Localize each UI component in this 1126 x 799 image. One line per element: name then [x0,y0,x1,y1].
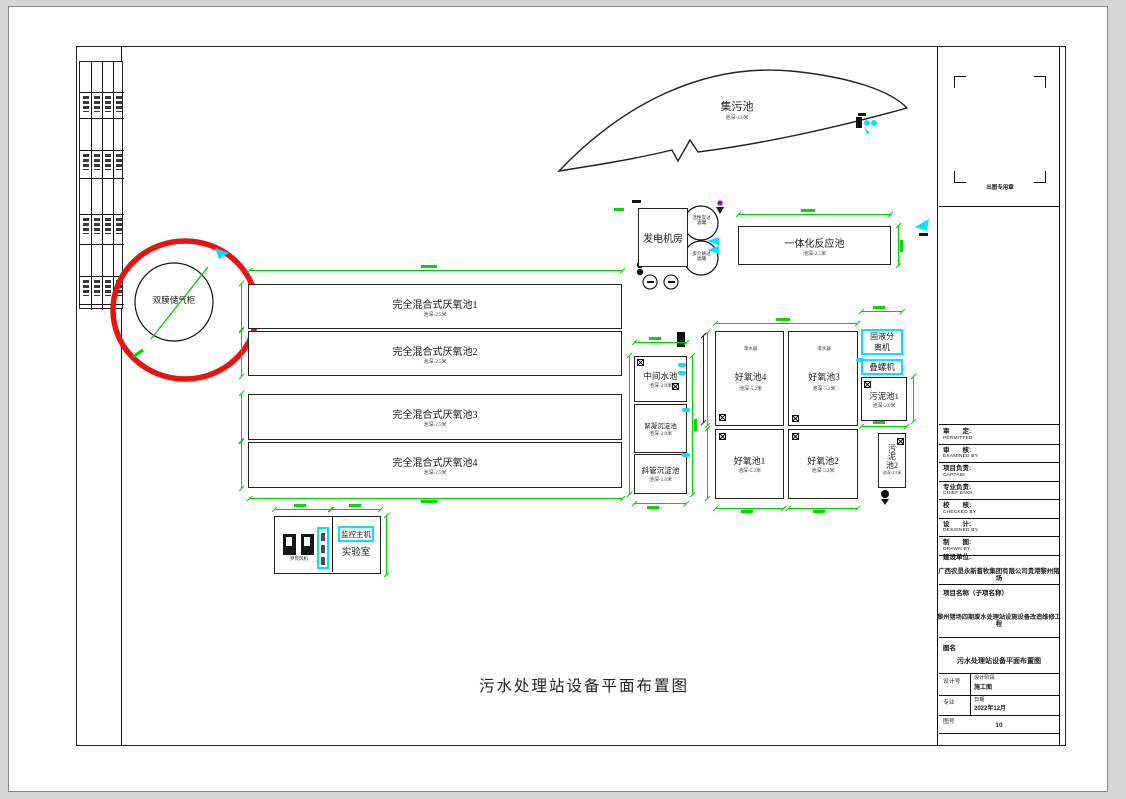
anaerobic-tank-3: 完全混合式厌氧池3 池深-2.5米 [248,394,622,440]
legend-text-mark [94,154,100,170]
dimension-text [900,240,903,252]
roots-blower-label: 罗茨风机 [279,556,319,561]
tiny-annotation [919,233,928,236]
aerobic-tank-3: 滗水器 好氧池3 池深-5.2米 [788,331,858,426]
cabinet-text-mark [321,533,325,541]
aerobic-tank-4-label: 好氧池4 [716,372,785,382]
dimension-text [873,421,885,424]
anaerobic-tank-2-depth: 池深-2.5米 [424,358,447,365]
tiny-annotation [632,200,641,203]
dimension-text [294,504,306,507]
dimension-text [647,506,659,509]
dimension-line [707,333,708,425]
anaerobic-tank-2-label: 完全混合式厌氧池2 [393,343,478,358]
dimension-text [649,337,661,340]
solid-liquid-separator: 固液分 离机 [861,329,903,355]
dimension-text [614,208,624,211]
flocculation-tank-label: 絮凝沉淀池 [644,420,677,430]
aerobic-tank-4-depth: 池深-5.2米 [716,387,785,393]
valve-symbol [672,383,679,390]
dimension-text [421,500,437,503]
aerobic-tank-1-label: 好氧池1 [734,454,766,467]
media-filter-label: 多介质过 滤罐 [688,251,715,262]
screenshot-canvas: 集污池 池深-4.0米 双膜储气柜 活性炭过 滤罐 多介质过 滤罐 发电机房 一… [0,0,1126,799]
legend-text-mark [83,96,89,112]
integrated-reactor: 一体化反应池 池深-2.5米 [738,226,891,265]
solid-liquid-separator-label: 固液分 离机 [870,331,894,353]
dimension-line [386,516,387,574]
anaerobic-tank-4-label: 完全混合式厌氧池4 [393,454,478,469]
inclined-tube-tank-label: 斜管沉淀池 [642,465,680,476]
laboratory-label: 实验室 [338,548,374,559]
dimension-line [241,331,242,376]
dimension-line [634,342,687,343]
signature-row-en: CHECKED BY [943,510,1013,516]
titleblock-divider [939,424,1059,425]
flocculation-tank-depth: 池深-2.0米 [649,430,672,437]
pump-icon [856,358,864,362]
aerobic-tank-1-depth: 池深-5.2米 [738,467,761,474]
carbon-filter-label: 活性炭过 滤罐 [688,215,715,226]
dimension-line [241,442,242,488]
dimension-text [801,209,815,212]
sludge-tank-2-label: 污 泥 池2 [886,445,898,470]
sludge-tank-1-depth: 池深-2.0米 [873,402,896,409]
left-legend-table [79,61,123,309]
dimension-text [694,419,697,431]
valve-symbol [719,433,726,440]
dimension-text [349,504,361,507]
titleblock-divider [939,637,1059,638]
drawing-name-label: 图名 [943,645,983,652]
middle-pool-label: 中间水池 [643,370,677,382]
legend-text-mark [83,280,89,296]
signature-row-cn: 专业负责: [943,484,1003,491]
dimension-line [274,509,331,510]
decanter-label: 滗水器 [716,346,785,351]
signature-row-en: PERMITTED [943,436,1013,442]
middle-pool-depth: 池深-2.0米 [649,382,672,389]
inclined-tube-tank: 斜管沉淀池 池深-2.0米 [634,454,687,494]
discipline-label: 专业 [943,700,969,707]
dimension-text [421,265,437,268]
signature-row-line [939,518,1059,519]
titleblock-divider [939,584,1059,585]
drawing-name: 污水处理站设备平面布置图 [939,658,1059,666]
stamp-caption: 出图专用章 [959,185,1041,191]
anaerobic-tank-3-depth: 池深-2.5米 [424,421,447,428]
date-value: 2022年12月 [974,706,1024,713]
owner-label: 建设单位: [943,554,1003,561]
sludge-tank-1-label: 污泥池1 [869,390,899,402]
pump-icon [678,371,686,375]
dimension-text [741,510,753,513]
legend-text-mark [105,154,111,170]
dimension-line [861,311,903,312]
date-label: 日期 [974,698,1014,704]
titleblock-table-line [970,673,971,715]
legend-text-mark [83,218,89,234]
anaerobic-tank-1-label: 完全混合式厌氧池1 [393,296,478,311]
signature-row-line [939,536,1059,537]
stage-label: 设计阶段 [974,676,1014,682]
dimension-line [241,284,242,329]
dimension-line [898,226,899,265]
legend-text-mark [94,96,100,112]
dimension-line [692,356,693,494]
stamp-corner [954,171,966,183]
sludge-tank-2-depth: 池深-2.5米 [882,470,901,476]
tiny-annotation [858,113,866,116]
dimension-line [249,498,623,499]
pump-icon [678,363,686,367]
dimension-line [715,323,858,324]
legend-text-mark [105,96,111,112]
dimension-line [707,429,708,498]
aerobic-tank-2-depth: 池深-5.2米 [812,467,835,474]
titleblock-table-line [939,733,1059,734]
titleblock-table-line [939,715,1059,716]
aerobic-tank-4: 滗水器 好氧池4 池深-5.2米 [715,331,784,426]
valve-symbol [792,415,799,422]
dimension-text [873,306,885,309]
valve-symbol [719,414,726,421]
signature-row-line [939,499,1059,500]
screw-press: 叠螺机 [861,359,903,375]
signature-row-cn: 制 图: [943,539,1003,546]
dimension-text [776,318,790,321]
signature-row-line [939,462,1059,463]
legend-text-mark [116,154,122,170]
valve-symbol [637,359,644,366]
dimension-line [788,508,858,509]
legend-text-mark [116,96,122,112]
design-no-label: 设计号 [943,679,969,686]
legend-text-mark [94,218,100,234]
signature-row-cn: 项目负责: [943,465,1003,472]
decanter-label: 滗水器 [789,346,859,351]
valve-symbol [792,433,799,440]
signature-row-en: DRAWN BY [943,547,1013,553]
owner-name: 广西农垦永新畜牧集团有限公司贵港黎州猪场 [938,568,1060,583]
monitor-host: 监控主机 [338,526,374,542]
dimension-line [861,426,907,427]
project-label: 项目名称（子项名称） [943,590,1033,597]
roots-blower [283,534,296,555]
anaerobic-tank-4: 完全混合式厌氧池4 池深-2.5米 [248,442,622,488]
gas-holder-label: 双膜储气柜 [141,296,207,306]
legend-text-mark [83,154,89,170]
anaerobic-tank-3-label: 完全混合式厌氧池3 [393,406,478,421]
sheet-no-value: 10 [939,722,1059,729]
cabinet-text-mark [321,557,325,565]
signature-row-en: CHIEF ENGI. [943,491,1013,497]
valve-symbol [897,438,904,445]
legend-text-mark [116,280,122,296]
anaerobic-tank-1: 完全混合式厌氧池1 池深-2.5米 [248,284,622,329]
aerobic-tank-2-label: 好氧池2 [807,454,839,467]
stamp-corner [954,76,966,88]
signature-row-line [939,481,1059,482]
roots-blower [301,534,314,555]
anaerobic-tank-4-depth: 池深-2.5米 [424,469,447,476]
integrated-reactor-depth: 池深-2.5米 [803,250,826,257]
main-title: 污水处理站设备平面布置图 [479,678,689,696]
collection-pool-label: 集污池 [706,101,768,114]
legend-text-mark [105,218,111,234]
project-name: 黎州猪场四期废水处理站设施设备改造维修工程 [936,614,1062,628]
stage-value: 施工图 [974,685,1014,692]
collection-pool-depth: 池深-4.0米 [713,116,761,122]
drawing-sheet: 集污池 池深-4.0米 双膜储气柜 活性炭过 滤罐 多介质过 滤罐 发电机房 一… [8,6,1108,792]
generator-room-label: 发电机房 [643,230,683,245]
aerobic-tank-3-label: 好氧池3 [789,372,859,382]
aerobic-tank-3-depth: 池深-5.2米 [789,387,859,393]
stamp-corner [1034,171,1046,183]
dosing-cabinet [317,527,329,569]
dimension-line [241,394,242,440]
legend-text-mark [94,280,100,296]
dimension-line [913,377,914,421]
generator-room: 发电机房 [638,208,688,267]
signature-row-cn: 设 计: [943,521,1003,528]
signature-row-cn: 审 定: [943,428,1003,435]
titleblock-divider [939,206,1059,207]
legend-text-mark [116,218,122,234]
anaerobic-tank-1-depth: 池深-2.5米 [424,311,447,318]
dimension-line [634,503,687,504]
titleblock-table-line [939,673,1059,674]
dimension-line-black [703,336,704,422]
signature-row-cn: 校 核: [943,502,1003,509]
signature-row-line [939,444,1059,445]
pump-icon [682,408,690,412]
flocculation-tank: 絮凝沉淀池 池深-2.0米 [634,404,687,453]
titleblock-left-line [937,46,938,746]
screw-press-label: 叠螺机 [869,361,895,373]
valve-symbol [864,381,871,388]
anaerobic-tank-2: 完全混合式厌氧池2 池深-2.5米 [248,331,622,376]
inclined-tube-tank-depth: 池深-2.0米 [649,476,672,483]
cabinet-text-mark [321,545,325,553]
dimension-line [249,270,623,271]
signature-row-en: CAPTAIN [943,473,1013,479]
titleblock-table-line [939,695,1059,696]
dimension-line [715,508,784,509]
integrated-reactor-label: 一体化反应池 [785,235,845,250]
dimension-text [813,510,825,513]
signature-row-en: EXAMINED BY [943,454,1013,460]
signature-row-en: DESIGNED BY [943,528,1013,534]
titleblock-right-line [1059,46,1060,746]
dimension-line [629,356,630,494]
legend-text-mark [105,280,111,296]
stamp-corner [1034,76,1046,88]
monitor-host-label: 监控主机 [341,529,371,540]
dimension-line [331,509,381,510]
pump-icon [682,453,690,457]
signature-row-cn: 审 核: [943,447,1003,454]
dimension-line [738,214,891,215]
